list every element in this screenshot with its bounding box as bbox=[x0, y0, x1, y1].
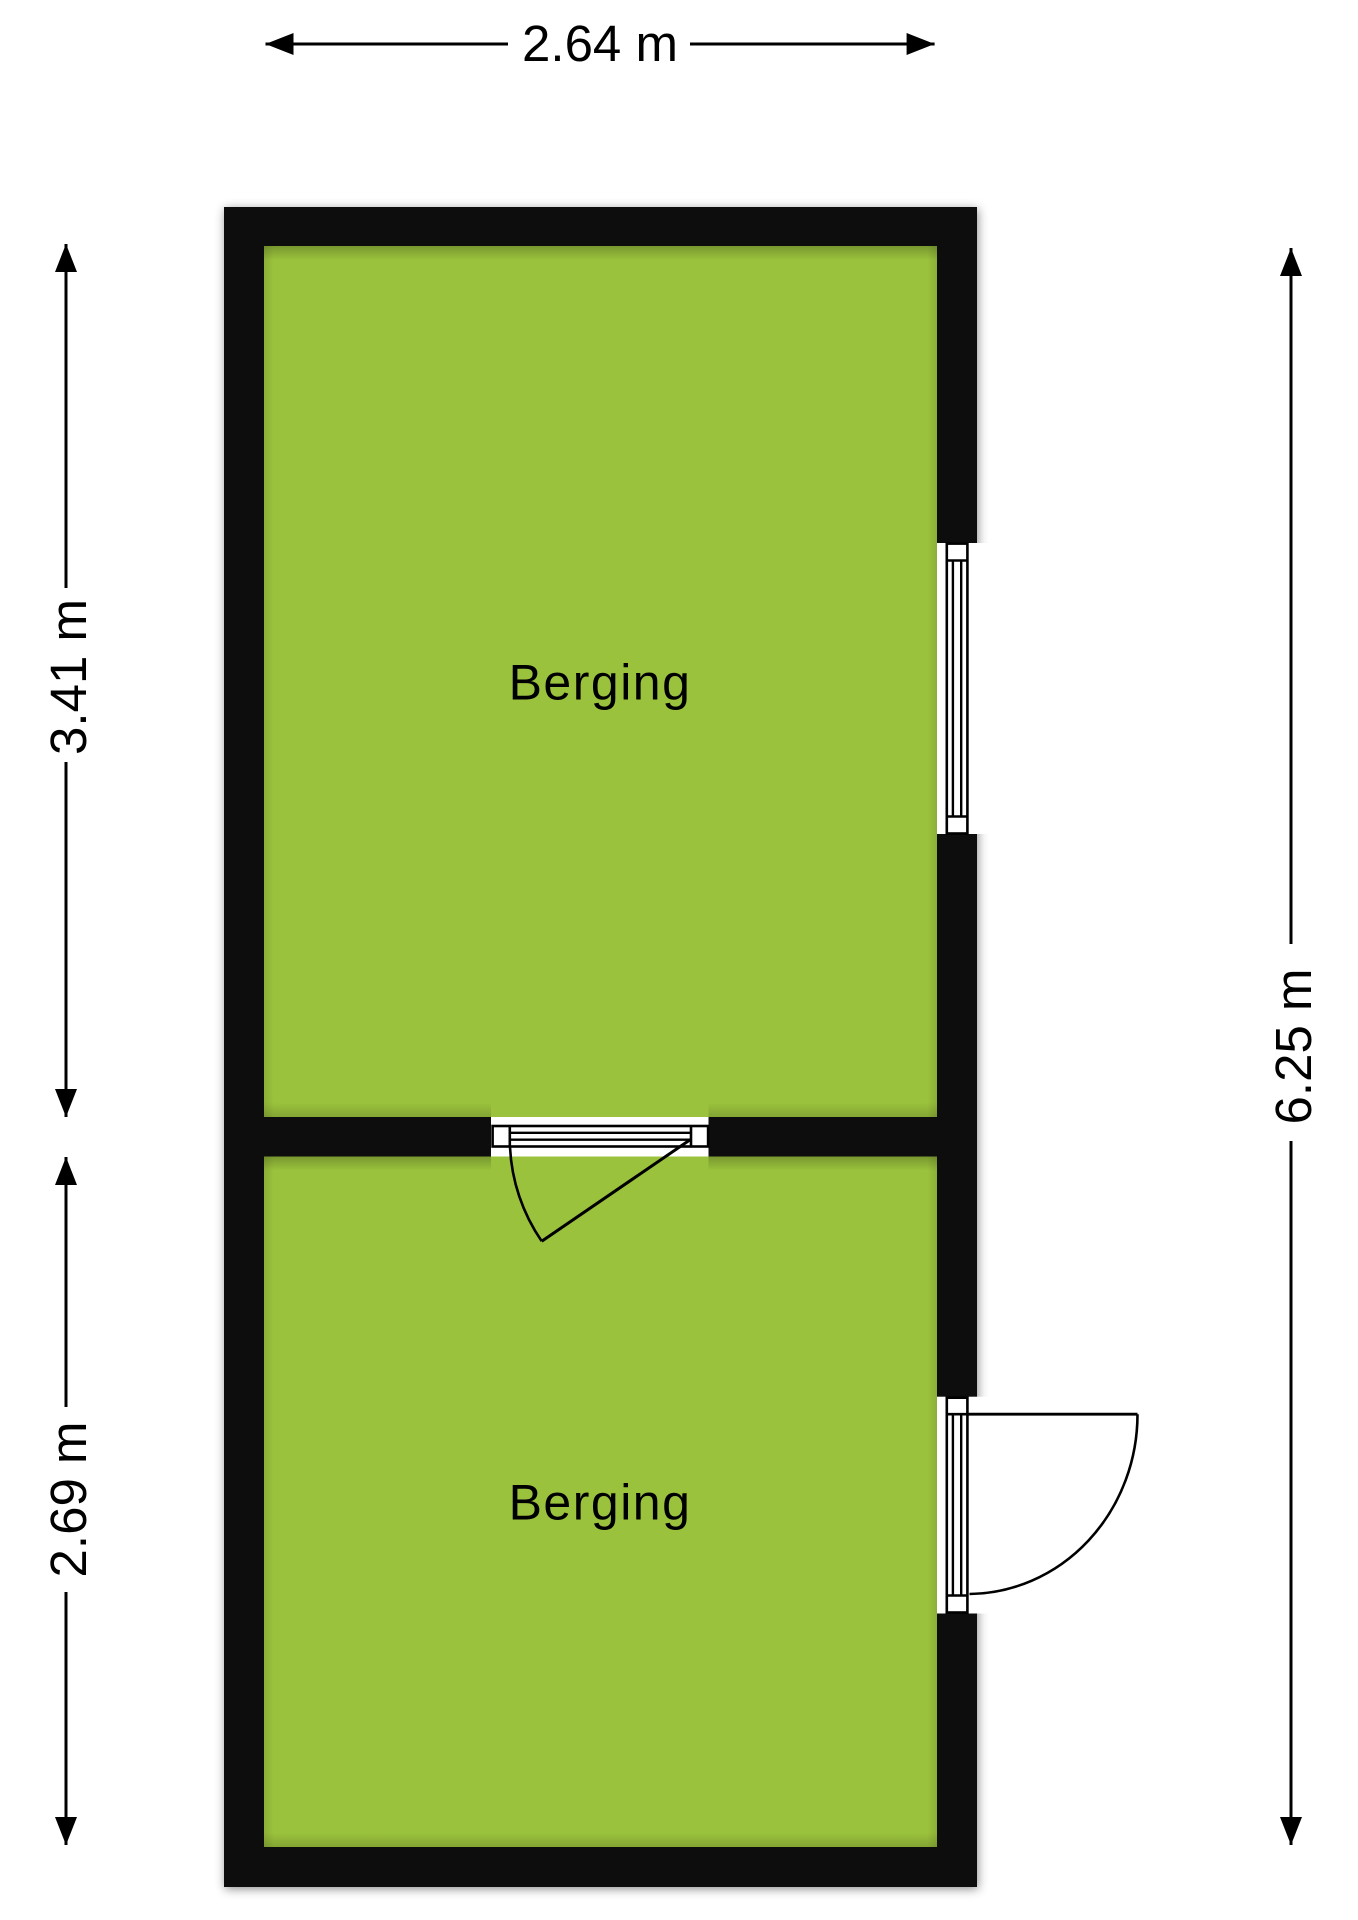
svg-text:2.64 m: 2.64 m bbox=[522, 15, 678, 72]
svg-text:2.69 m: 2.69 m bbox=[40, 1422, 97, 1578]
svg-text:Berging: Berging bbox=[509, 1475, 692, 1531]
svg-text:6.25 m: 6.25 m bbox=[1265, 969, 1322, 1125]
svg-text:3.41 m: 3.41 m bbox=[40, 599, 97, 755]
svg-text:Berging: Berging bbox=[509, 655, 692, 711]
